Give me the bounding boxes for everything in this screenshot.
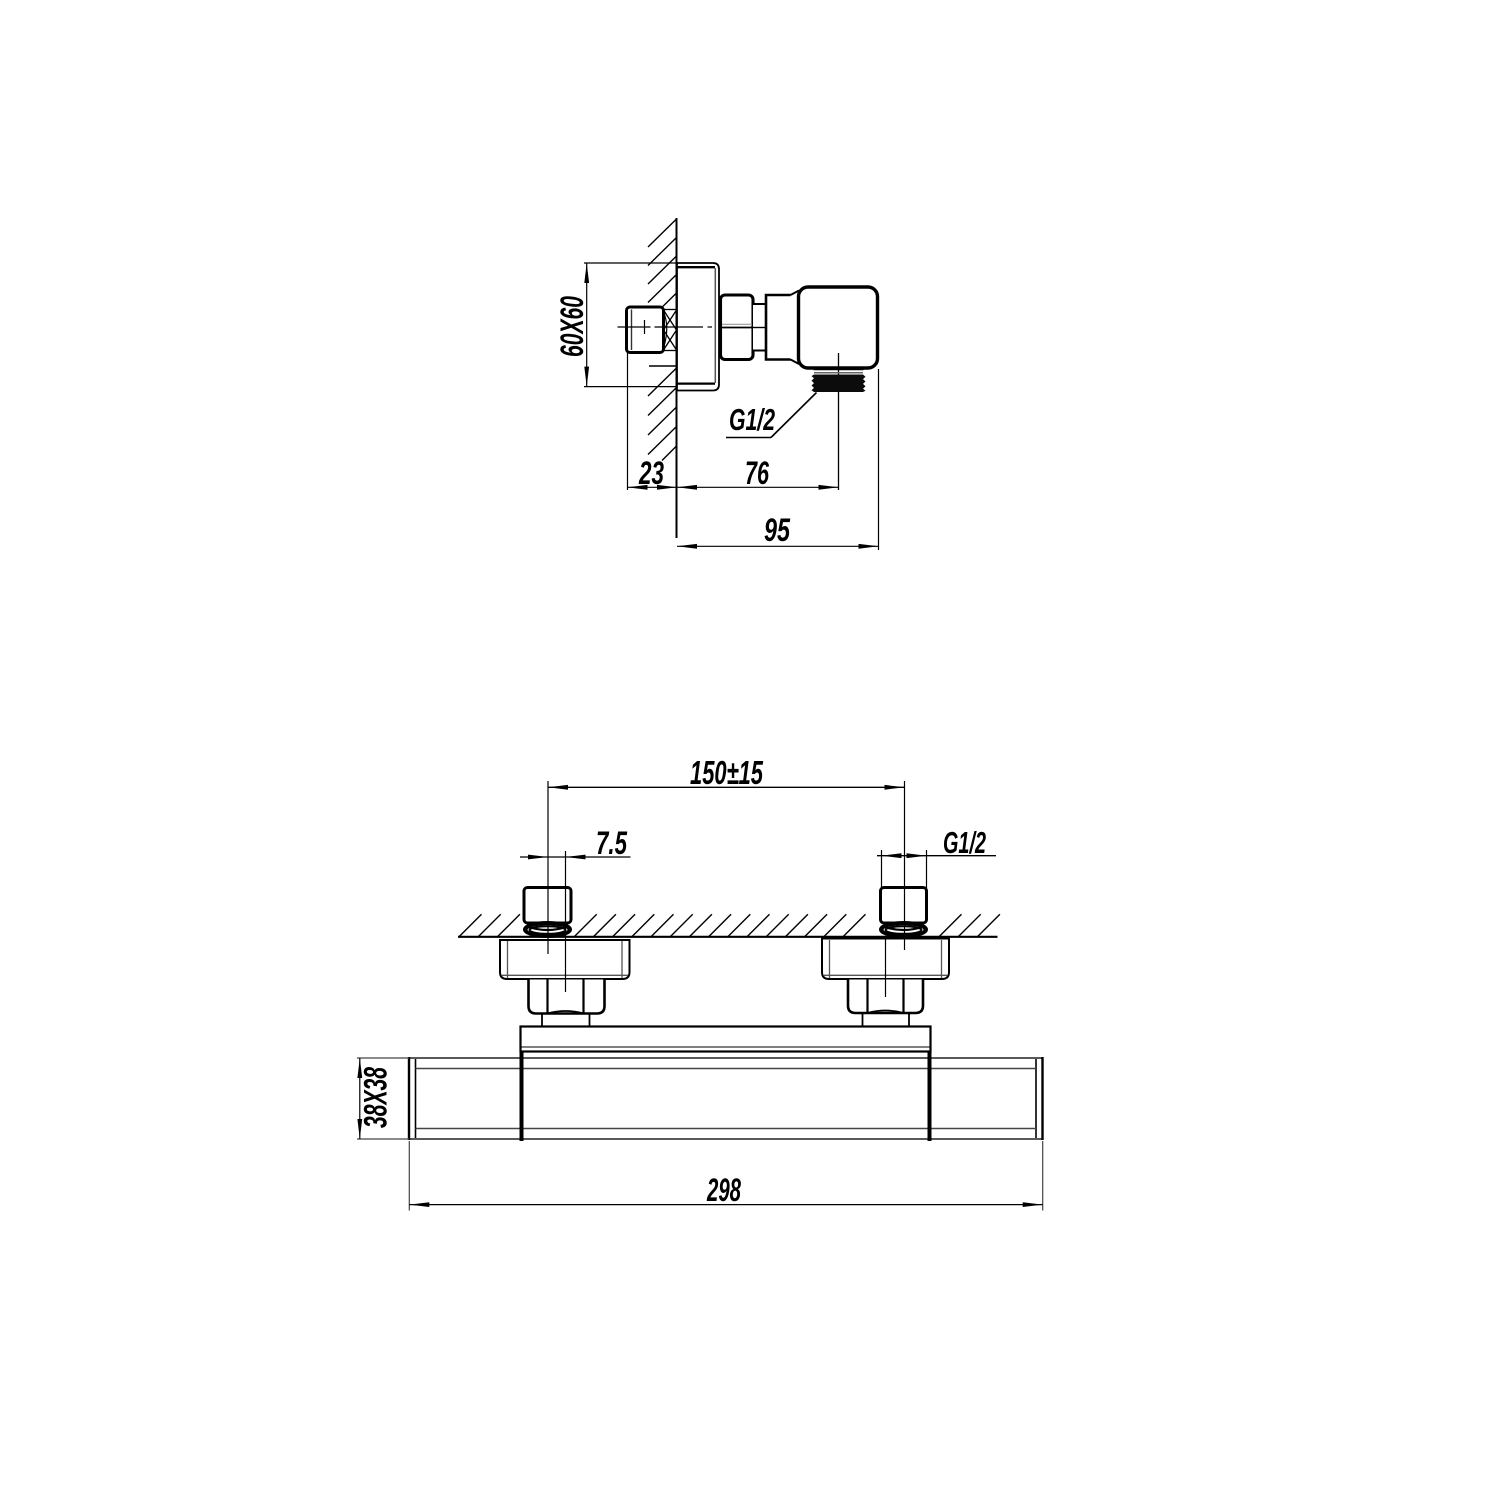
svg-text:7.5: 7.5 — [596, 825, 628, 861]
svg-text:G1/2: G1/2 — [729, 402, 775, 437]
svg-text:23: 23 — [638, 455, 664, 491]
svg-text:298: 298 — [706, 1172, 741, 1208]
svg-text:95: 95 — [764, 512, 791, 548]
svg-text:76: 76 — [745, 455, 769, 491]
svg-text:60X60: 60X60 — [554, 296, 590, 357]
svg-text:38X38: 38X38 — [358, 1067, 394, 1128]
svg-text:150±15: 150±15 — [690, 754, 763, 791]
svg-text:G1/2: G1/2 — [943, 825, 986, 860]
